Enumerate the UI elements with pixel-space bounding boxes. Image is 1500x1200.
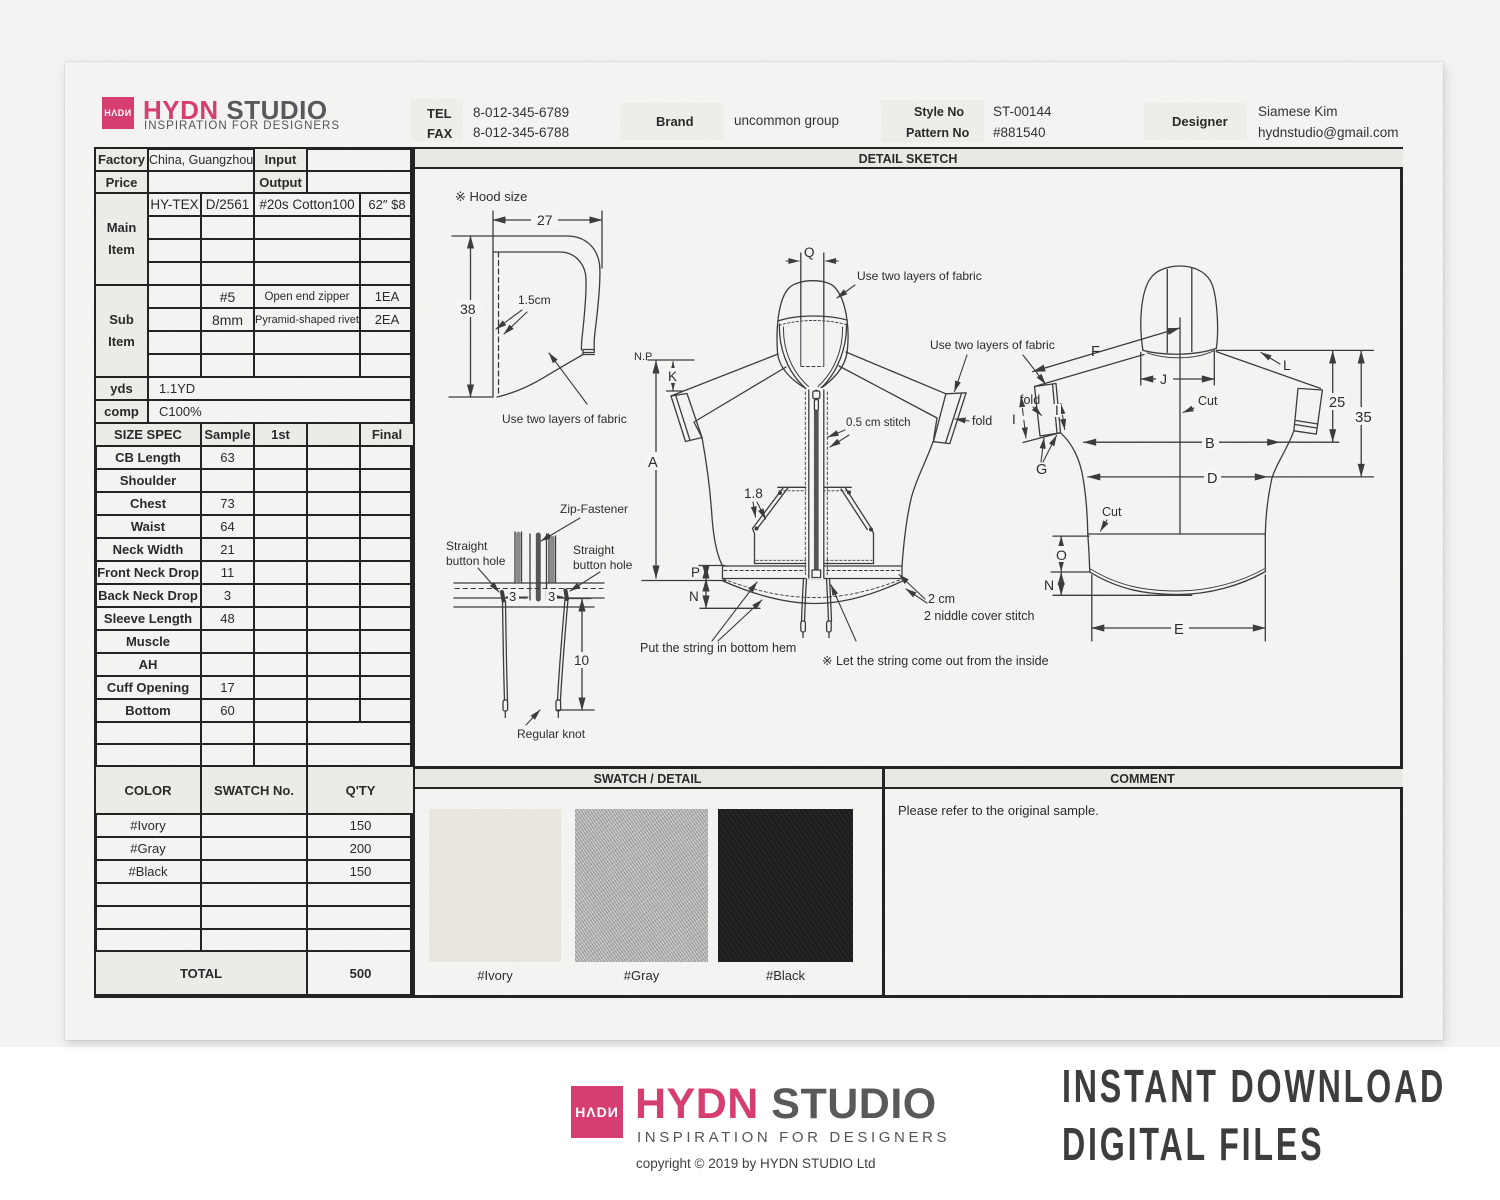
svg-text:fold: fold <box>1020 393 1040 407</box>
svg-text:3: 3 <box>548 589 555 604</box>
svg-text:Cut: Cut <box>1198 394 1218 408</box>
svg-text:1.5cm: 1.5cm <box>518 293 551 307</box>
svg-text:Zip-Fastener: Zip-Fastener <box>560 502 628 516</box>
svg-text:K: K <box>668 369 677 384</box>
svg-text:D: D <box>1207 471 1217 487</box>
svg-text:O: O <box>1056 547 1067 563</box>
svg-text:B: B <box>1205 436 1215 452</box>
svg-text:38: 38 <box>460 301 476 317</box>
svg-text:25: 25 <box>1329 395 1345 411</box>
svg-text:0.5 cm stitch: 0.5 cm stitch <box>846 417 911 429</box>
svg-text:G: G <box>1036 462 1047 478</box>
svg-text:L: L <box>1283 357 1291 373</box>
svg-text:Straight: Straight <box>573 543 615 557</box>
svg-text:Use two layers of fabric: Use two layers of fabric <box>930 338 1055 352</box>
svg-text:27: 27 <box>537 212 553 228</box>
svg-text:A: A <box>648 455 658 471</box>
svg-text:I: I <box>1012 412 1016 427</box>
svg-text:35: 35 <box>1355 409 1372 426</box>
svg-text:Put the string in bottom hem: Put the string in bottom hem <box>640 641 796 655</box>
svg-text:fold: fold <box>972 414 992 428</box>
svg-text:J: J <box>1160 371 1167 387</box>
svg-text:3: 3 <box>509 589 516 604</box>
svg-text:I: I <box>1055 403 1059 418</box>
svg-text:Use two layers of fabric: Use two layers of fabric <box>502 412 627 426</box>
svg-text:E: E <box>1174 622 1184 638</box>
svg-text:F: F <box>1091 344 1100 360</box>
svg-text:button hole: button hole <box>446 554 506 568</box>
svg-text:Regular knot: Regular knot <box>517 727 586 741</box>
svg-text:Straight: Straight <box>446 539 488 553</box>
svg-text:Q: Q <box>804 245 815 260</box>
svg-text:1.8: 1.8 <box>744 486 763 501</box>
svg-text:P: P <box>691 565 700 580</box>
svg-text:2 niddle cover stitch: 2 niddle cover stitch <box>924 609 1035 623</box>
svg-text:button hole: button hole <box>573 558 633 572</box>
svg-text:10: 10 <box>574 653 589 668</box>
svg-text:2 cm: 2 cm <box>928 592 955 606</box>
svg-text:Use two layers of fabric: Use two layers of fabric <box>857 269 982 283</box>
svg-text:N: N <box>1044 577 1054 593</box>
svg-text:Cut: Cut <box>1102 505 1122 519</box>
svg-text:※ Hood size: ※ Hood size <box>455 189 527 204</box>
svg-text:N.P: N.P <box>634 351 652 363</box>
svg-text:N: N <box>689 589 699 604</box>
svg-text:※ Let the string come out from: ※ Let the string come out from the insid… <box>822 654 1049 668</box>
